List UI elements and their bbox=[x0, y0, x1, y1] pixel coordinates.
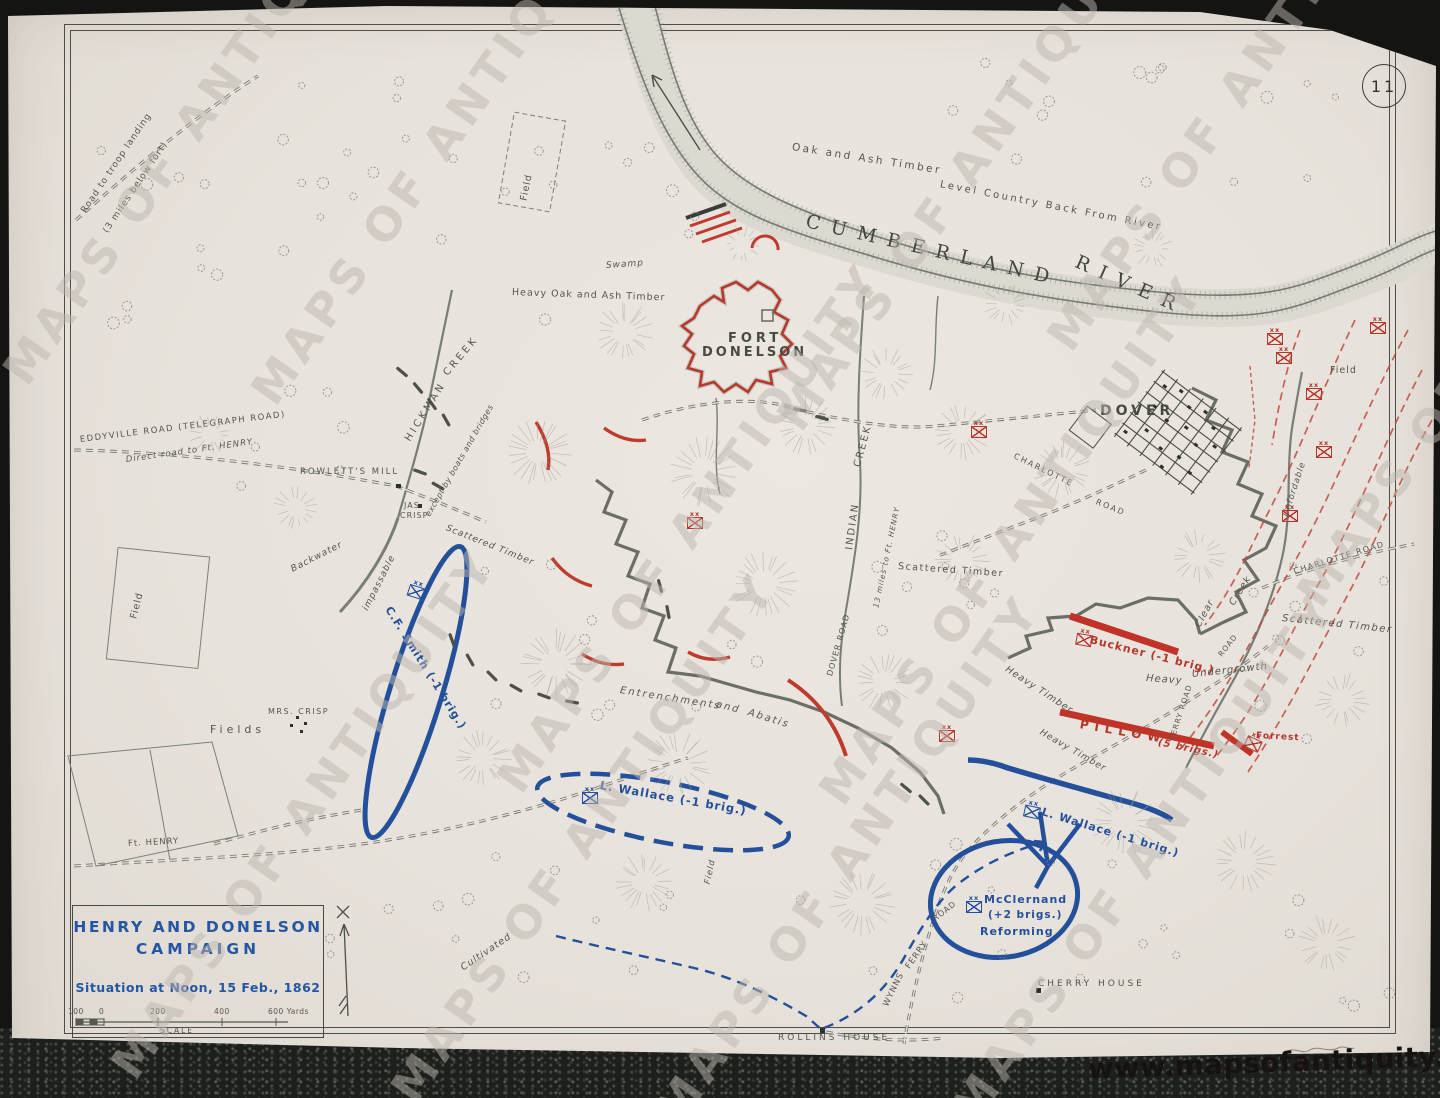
label-level-country: Level Country Back From River bbox=[939, 180, 1163, 233]
confederate-division-symbol-icon: xx bbox=[1267, 333, 1283, 345]
map-subtitle: Situation at Noon, 15 Feb., 1862 bbox=[73, 980, 323, 995]
division-echelon: xx bbox=[1279, 345, 1289, 353]
scale-tick: 0 bbox=[99, 1007, 104, 1016]
confederate-division-symbol-icon: xx bbox=[1316, 446, 1332, 458]
division-echelon: xx bbox=[690, 510, 700, 518]
label-road-troop-landing: Road to troop landing bbox=[80, 112, 154, 215]
division-echelon: xx bbox=[1309, 381, 1319, 389]
confederate-division-symbol-icon: xx bbox=[939, 730, 955, 742]
union-division-symbol-icon: xx bbox=[582, 792, 598, 804]
map-label-32: CREEK bbox=[853, 424, 874, 468]
map-label-40: Clear bbox=[1194, 598, 1216, 629]
map-label-48: ROAD bbox=[1217, 633, 1239, 658]
page-number: 11 bbox=[1371, 77, 1397, 96]
map-label-43: Field bbox=[1330, 366, 1357, 376]
confederate-division-symbol-icon: xx bbox=[971, 426, 987, 438]
label-mcclernand: McClernand bbox=[984, 894, 1067, 905]
map-label-7: Swamp bbox=[606, 259, 645, 271]
map-label-34: DOVER ROAD bbox=[826, 613, 851, 677]
map-label-1: (3 miles below fort) bbox=[102, 141, 170, 235]
map-label-25: Field bbox=[129, 591, 145, 619]
map-label-23: MRS. CRISP bbox=[268, 708, 329, 716]
map-label-30: Cultivated bbox=[459, 932, 513, 973]
division-echelon: xx bbox=[1373, 315, 1383, 323]
union-division-symbol-icon: xx bbox=[966, 901, 982, 913]
label-ft-henry-road: Ft. HENRY bbox=[128, 837, 180, 848]
map-label-52: ROAD bbox=[932, 900, 958, 923]
label-fort-donelson: FORT bbox=[728, 332, 782, 345]
map-label-36: Heavy Timber bbox=[1003, 665, 1074, 716]
photo-background: Road to troop landing(3 miles below fort… bbox=[0, 0, 1440, 1098]
label-hickman-creek: HICKMAN bbox=[404, 381, 448, 444]
label-l-wallace-right: L. Wallace (-1 brig.) bbox=[1040, 806, 1180, 858]
label-entrenchments: Entrenchments bbox=[619, 686, 722, 712]
map-label-45: ROAD bbox=[1095, 498, 1127, 517]
confederate-division-symbol-icon: xx bbox=[1243, 735, 1263, 753]
map-label-59: (+2 brigs.) bbox=[988, 910, 1062, 921]
union-division-symbol-icon: xx bbox=[407, 584, 426, 600]
map-label-15: Backwater bbox=[290, 541, 344, 575]
scale-tick: 400 bbox=[214, 1007, 230, 1016]
label-cumberland-river: CUMBERLAND bbox=[804, 212, 1062, 289]
map-label-46: CHARLOTTE ROAD bbox=[1293, 540, 1386, 575]
label-charlotte-road: CHARLOTTE bbox=[1012, 452, 1075, 488]
map-label-18: Direct road to Ft. HENRY bbox=[125, 438, 253, 464]
title-block: HENRY AND DONELSON CAMPAIGN Situation at… bbox=[72, 905, 324, 1038]
confederate-division-symbol-icon: xx bbox=[687, 517, 703, 529]
map-label-24: Fields bbox=[210, 724, 265, 735]
division-echelon: xx bbox=[1080, 626, 1092, 636]
map-label-8: Heavy Oak and Ash Timber bbox=[512, 288, 666, 303]
label-dover: DOVER bbox=[1100, 404, 1174, 418]
map-label-22: Scattered Timber bbox=[444, 524, 535, 568]
label-rollins-house: ROLLINS HOUSE bbox=[778, 1034, 890, 1043]
label-pillow: PILLOW bbox=[1079, 718, 1167, 745]
map-label-49: FERRY ROAD bbox=[1168, 684, 1193, 741]
confederate-division-symbol-icon: xx bbox=[1276, 352, 1292, 364]
map-label-41: Creek bbox=[1228, 574, 1253, 607]
label-rowletts-mill: ROWLETT'S MILL bbox=[300, 468, 399, 477]
division-echelon: xx bbox=[969, 894, 979, 902]
label-oak-ash-timber: Oak and Ash Timber bbox=[791, 142, 942, 176]
label-buckner: Buckner (-1 brig.) bbox=[1089, 634, 1216, 676]
label-l-wallace-left: L. Wallace (-1 brig.) bbox=[599, 780, 747, 817]
map-label-37: Heavy bbox=[1146, 674, 1183, 687]
map-label-47: Scattered Timber bbox=[1281, 614, 1392, 636]
confederate-division-symbol-icon: xx bbox=[1370, 322, 1386, 334]
map-label-20: JAS. bbox=[404, 502, 423, 510]
map-label-60: Reforming bbox=[980, 926, 1054, 937]
map-label-28: and bbox=[715, 700, 742, 716]
map-label-51: FERRY bbox=[905, 940, 930, 971]
confederate-division-symbol-icon: xx bbox=[1075, 633, 1093, 648]
map-title-line2: CAMPAIGN bbox=[73, 940, 323, 958]
map-label-5: RIVER bbox=[1072, 253, 1188, 319]
map-label-35: Scattered Timber bbox=[898, 562, 1005, 579]
map-label-21: CRISP bbox=[400, 512, 428, 520]
map-title-line1: HENRY AND DONELSON bbox=[73, 918, 323, 936]
division-echelon: xx bbox=[1028, 798, 1040, 808]
map-label-10: DONELSON bbox=[702, 346, 807, 359]
division-echelon: xx bbox=[1319, 439, 1329, 447]
scale-label: SCALE bbox=[160, 1026, 194, 1035]
scale-tick: 600 Yards bbox=[268, 1007, 309, 1016]
map-label-29: Abatis bbox=[747, 708, 791, 730]
label-cf-smith: C.F. Smith (-1 brig.) bbox=[383, 605, 468, 732]
division-echelon: xx bbox=[1270, 326, 1280, 334]
division-echelon: xx bbox=[974, 419, 984, 427]
label-indian-creek: INDIAN bbox=[845, 502, 862, 550]
confederate-division-symbol-icon: xx bbox=[1306, 388, 1322, 400]
division-echelon: xx bbox=[413, 578, 425, 589]
label-cherry-house: CHERRY HOUSE bbox=[1038, 980, 1145, 989]
division-echelon: xx bbox=[1285, 503, 1295, 511]
map-label-33: 13 miles to Ft. HENRY bbox=[872, 506, 901, 608]
page-number-badge: 11 bbox=[1362, 64, 1406, 108]
union-division-symbol-icon: xx bbox=[1023, 804, 1041, 819]
scale-tick: 100 bbox=[68, 1007, 84, 1016]
map-sheet: Road to troop landing(3 miles below fort… bbox=[0, 0, 1440, 1098]
scale-tick: 200 bbox=[150, 1007, 166, 1016]
division-echelon: xx bbox=[942, 723, 952, 731]
map-label-55: Field bbox=[704, 859, 718, 885]
division-echelon: xx bbox=[585, 785, 595, 793]
map-label-6: Field bbox=[519, 173, 534, 201]
map-label-64: (5 brigs.) bbox=[1157, 738, 1220, 761]
label-eddyville-road: EDDYVILLE ROAD (TELEGRAPH ROAD) bbox=[79, 411, 286, 445]
map-label-13: CREEK bbox=[442, 335, 481, 378]
confederate-division-symbol-icon: xx bbox=[1282, 510, 1298, 522]
map-label-39: Heavy Timber bbox=[1038, 729, 1108, 774]
label-wynns-ferry-road: WYNNS bbox=[882, 971, 906, 1008]
map-label-14: except by boats and bridges bbox=[425, 403, 496, 518]
